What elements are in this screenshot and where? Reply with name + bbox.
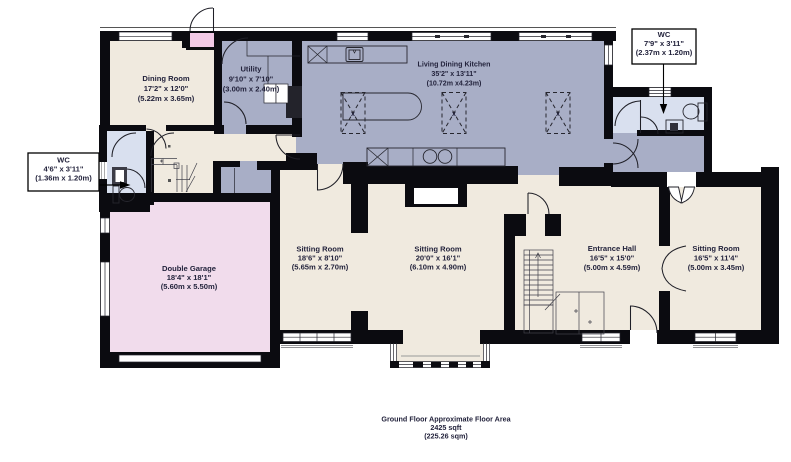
svg-text:x: x <box>556 111 560 118</box>
svg-text:35'2" x 13'11": 35'2" x 13'11" <box>431 70 476 78</box>
svg-text:(1.36m x 1.20m): (1.36m x 1.20m) <box>35 174 92 183</box>
svg-text:Utility: Utility <box>240 65 262 74</box>
svg-text:(3.00m x 2.40m): (3.00m x 2.40m) <box>223 85 280 94</box>
svg-text:Sitting Room: Sitting Room <box>296 245 343 254</box>
svg-text:20'0" x 16'1": 20'0" x 16'1" <box>416 254 461 263</box>
svg-text:WC: WC <box>57 156 70 165</box>
svg-text:(6.10m x 4.90m): (6.10m x 4.90m) <box>410 263 467 272</box>
svg-text:4'6" x 3'11": 4'6" x 3'11" <box>44 165 84 174</box>
svg-text:Sitting Room: Sitting Room <box>692 244 739 253</box>
svg-text:(225.26 sqm): (225.26 sqm) <box>424 432 468 441</box>
svg-text:(10.72m x4.23m): (10.72m x4.23m) <box>427 80 482 88</box>
svg-text:WC: WC <box>658 30 671 39</box>
svg-text:(2.37m x 1.20m): (2.37m x 1.20m) <box>636 48 693 57</box>
svg-text:18'4" x 18'1": 18'4" x 18'1" <box>167 273 212 282</box>
svg-text:(5.00m x 3.45m): (5.00m x 3.45m) <box>688 263 745 272</box>
svg-text:Sitting Room: Sitting Room <box>414 245 461 254</box>
svg-text:x: x <box>351 111 355 118</box>
svg-text:(5.60m x 5.50m): (5.60m x 5.50m) <box>161 282 218 291</box>
svg-text:Entrance Hall: Entrance Hall <box>588 244 637 253</box>
svg-text:Double Garage: Double Garage <box>162 264 216 273</box>
svg-text:16'5" x 11'4": 16'5" x 11'4" <box>694 254 739 263</box>
svg-text:9'10" x 7'10": 9'10" x 7'10" <box>229 75 274 84</box>
svg-text:(5.22m x 3.65m): (5.22m x 3.65m) <box>138 94 195 103</box>
svg-text:(5.00m x 4.59m): (5.00m x 4.59m) <box>584 263 641 272</box>
svg-text:(5.65m x 2.70m): (5.65m x 2.70m) <box>292 263 349 272</box>
svg-text:18'6" x 8'10": 18'6" x 8'10" <box>298 254 343 263</box>
svg-text:Living Dining Kitchen: Living Dining Kitchen <box>418 61 491 69</box>
svg-text:x: x <box>452 111 456 118</box>
svg-text:7'9" x 3'11": 7'9" x 3'11" <box>644 39 684 48</box>
svg-text:16'5" x 15'0": 16'5" x 15'0" <box>590 254 635 263</box>
svg-text:Dining Room: Dining Room <box>142 74 189 83</box>
svg-text:17'2" x 12'0": 17'2" x 12'0" <box>144 84 189 93</box>
